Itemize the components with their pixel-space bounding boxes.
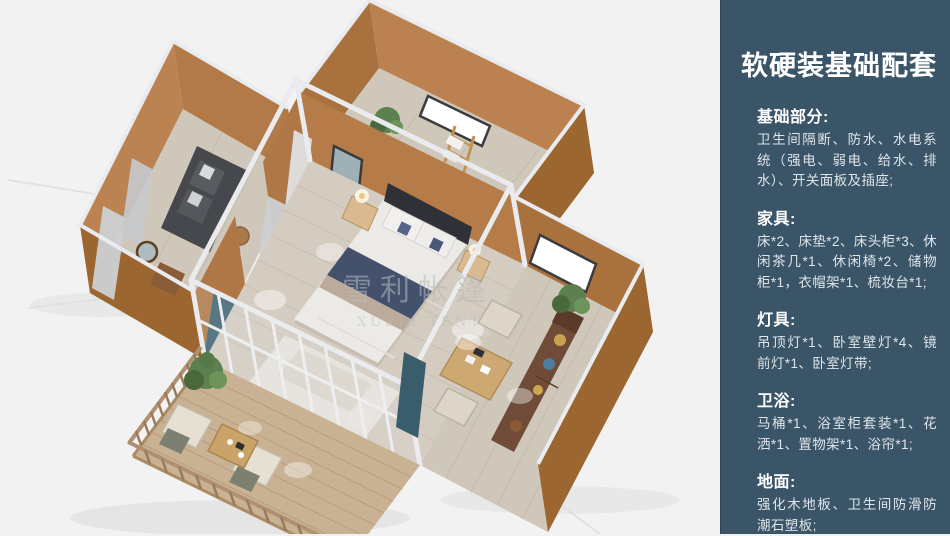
- section-body: 床*2、床垫*2、床头柜*3、休闲茶几*1、休闲椅*2、储物柜*1，衣帽架*1、…: [757, 232, 937, 294]
- panel-title: 软硬装基础配套: [741, 44, 950, 83]
- spec-section-furniture: 家具: 床*2、床垫*2、床头柜*3、休闲茶几*1、休闲椅*2、储物柜*1，衣帽…: [757, 205, 937, 294]
- spec-section-bathroom: 卫浴: 马桶*1、浴室柜套装*1、花洒*1、置物架*1、浴帘*1;: [757, 387, 937, 455]
- spec-section-basics: 基础部分: 卫生间隔断、防水、水电系统（强电、弱电、给水、排水）、开关面板及插座…: [757, 103, 937, 192]
- section-body: 强化木地板、卫生间防滑防潮石塑板;: [757, 495, 937, 536]
- section-heading: 基础部分:: [757, 103, 937, 127]
- floorplan-3d-render: 雪利帐篷 XUELI TENT: [0, 0, 720, 534]
- watermark-en: XUELI TENT: [357, 315, 483, 330]
- floorplan-render-area: 雪利帐篷 XUELI TENT: [0, 0, 720, 534]
- info-panel: 软硬装基础配套 基础部分: 卫生间隔断、防水、水电系统（强电、弱电、给水、排水）…: [720, 0, 950, 534]
- watermark: 雪利帐篷 XUELI TENT: [342, 273, 494, 330]
- section-body: 卫生间隔断、防水、水电系统（强电、弱电、给水、排水）、开关面板及插座;: [757, 130, 937, 192]
- section-heading: 地面:: [757, 468, 937, 492]
- spec-sections: 基础部分: 卫生间隔断、防水、水电系统（强电、弱电、给水、排水）、开关面板及插座…: [757, 103, 937, 536]
- watermark-cn: 雪利帐篷: [342, 273, 494, 308]
- section-heading: 灯具:: [757, 306, 937, 330]
- section-heading: 家具:: [757, 205, 937, 229]
- section-body: 马桶*1、浴室柜套装*1、花洒*1、置物架*1、浴帘*1;: [757, 414, 937, 455]
- spec-section-lighting: 灯具: 吊顶灯*1、卧室壁灯*4、镜前灯*1、卧室灯带;: [757, 306, 937, 374]
- section-body: 吊顶灯*1、卧室壁灯*4、镜前灯*1、卧室灯带;: [757, 333, 937, 374]
- spec-section-flooring: 地面: 强化木地板、卫生间防滑防潮石塑板;: [757, 468, 937, 536]
- section-heading: 卫浴:: [757, 387, 937, 411]
